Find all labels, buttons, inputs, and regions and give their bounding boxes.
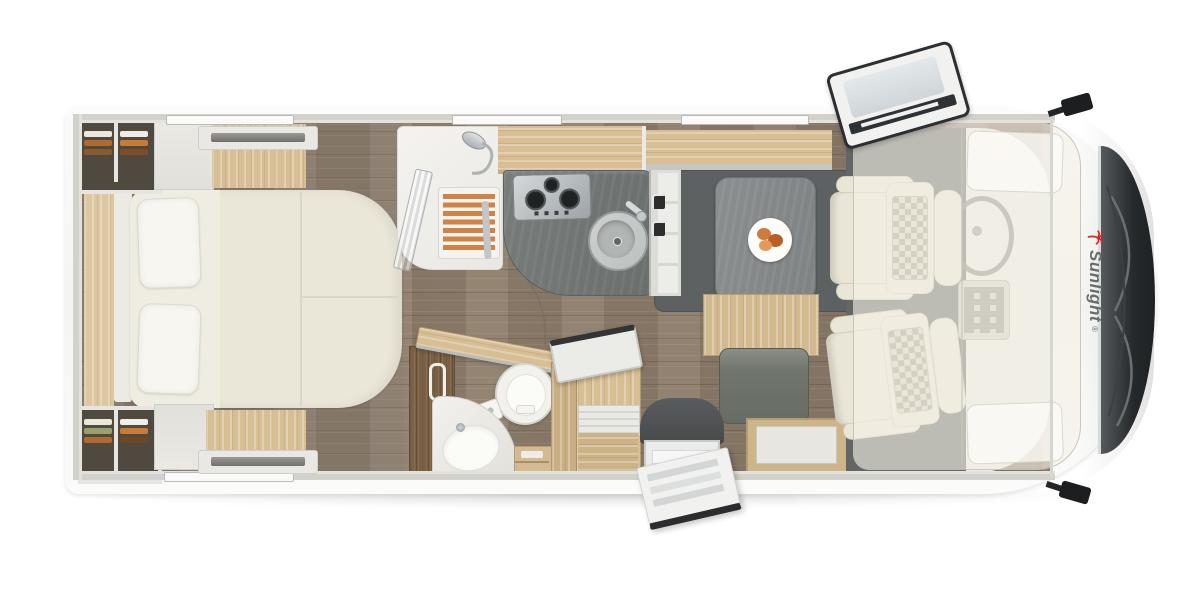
brand-logo: Sunlight®	[1082, 228, 1108, 358]
registered-mark: ®	[1091, 326, 1100, 332]
cab-junction-trim	[1050, 118, 1053, 478]
shower-hose-icon	[456, 139, 501, 184]
burner-icon	[559, 188, 581, 210]
toilet-seat-tab	[516, 405, 535, 414]
shelf-item	[521, 451, 543, 458]
brand-logo-text: Sunlight	[1085, 250, 1105, 322]
shower-cabin	[397, 126, 503, 270]
dinette-table	[715, 177, 816, 301]
entry-step-well	[640, 398, 724, 444]
side-mirror-bottom	[1046, 478, 1090, 502]
gas-hob	[512, 173, 591, 221]
fridge-tower	[649, 170, 681, 296]
clothes-stack	[82, 416, 114, 446]
bed-seam-vertical	[300, 192, 302, 406]
faucet-base	[636, 211, 647, 222]
bench-platform	[703, 294, 819, 356]
clothes-stack	[118, 128, 150, 158]
bedroom-deck-strip	[84, 182, 114, 408]
wardrobe-top-left	[78, 118, 162, 194]
food-item	[759, 240, 772, 251]
clothes-stack	[118, 416, 150, 446]
sink-drain	[613, 237, 622, 246]
basin-bowl	[437, 419, 504, 478]
motorhome-floor-plan: Sunlight®	[0, 0, 1200, 600]
plate-with-food	[748, 218, 792, 262]
kitchen-overhead-cabinet	[498, 126, 643, 174]
bed-overlay-seam	[961, 125, 963, 465]
fridge-hinge	[652, 194, 665, 209]
overhead-divider	[642, 126, 646, 174]
window-slot-top-2	[452, 115, 562, 125]
burner-icon	[543, 177, 559, 193]
toilet	[495, 363, 555, 425]
basin-faucet-icon	[456, 423, 465, 432]
side-mirror-top	[1048, 96, 1092, 120]
dinette-overhead-cabinet	[646, 130, 832, 166]
mirror-head	[1060, 92, 1094, 117]
mirror-head	[1058, 480, 1092, 505]
burner-icon	[525, 189, 547, 211]
kitchen-sink	[588, 211, 648, 271]
bed-pillow-right	[136, 303, 201, 395]
bed-seam-horizontal	[302, 296, 398, 298]
chest-roller-front	[578, 405, 640, 435]
roof-vent-glass	[211, 133, 305, 142]
shower-glass-door	[393, 168, 433, 271]
wall-rear	[73, 114, 82, 480]
bed-pillow-left	[136, 197, 201, 289]
sideboard-interior	[756, 426, 837, 464]
clothes-stack	[82, 128, 114, 158]
fridge-hinge	[652, 221, 665, 236]
shelf-divider	[515, 461, 549, 463]
window-slot-top-3	[681, 115, 809, 125]
windshield-wipers-icon	[1101, 146, 1155, 454]
hob-knobs	[534, 211, 570, 216]
drop-down-bed-overlay	[853, 122, 1081, 470]
sideboard	[746, 418, 849, 474]
chest-bottom-section	[578, 433, 638, 471]
roof-vent-bottom	[198, 450, 318, 474]
roof-vent-glass	[211, 457, 305, 466]
roof-vent-top	[198, 126, 318, 150]
bench-cushion	[719, 348, 809, 424]
palm-tree-icon	[1086, 228, 1104, 246]
window-slot-top-1	[166, 115, 294, 125]
island-bed	[130, 190, 402, 408]
